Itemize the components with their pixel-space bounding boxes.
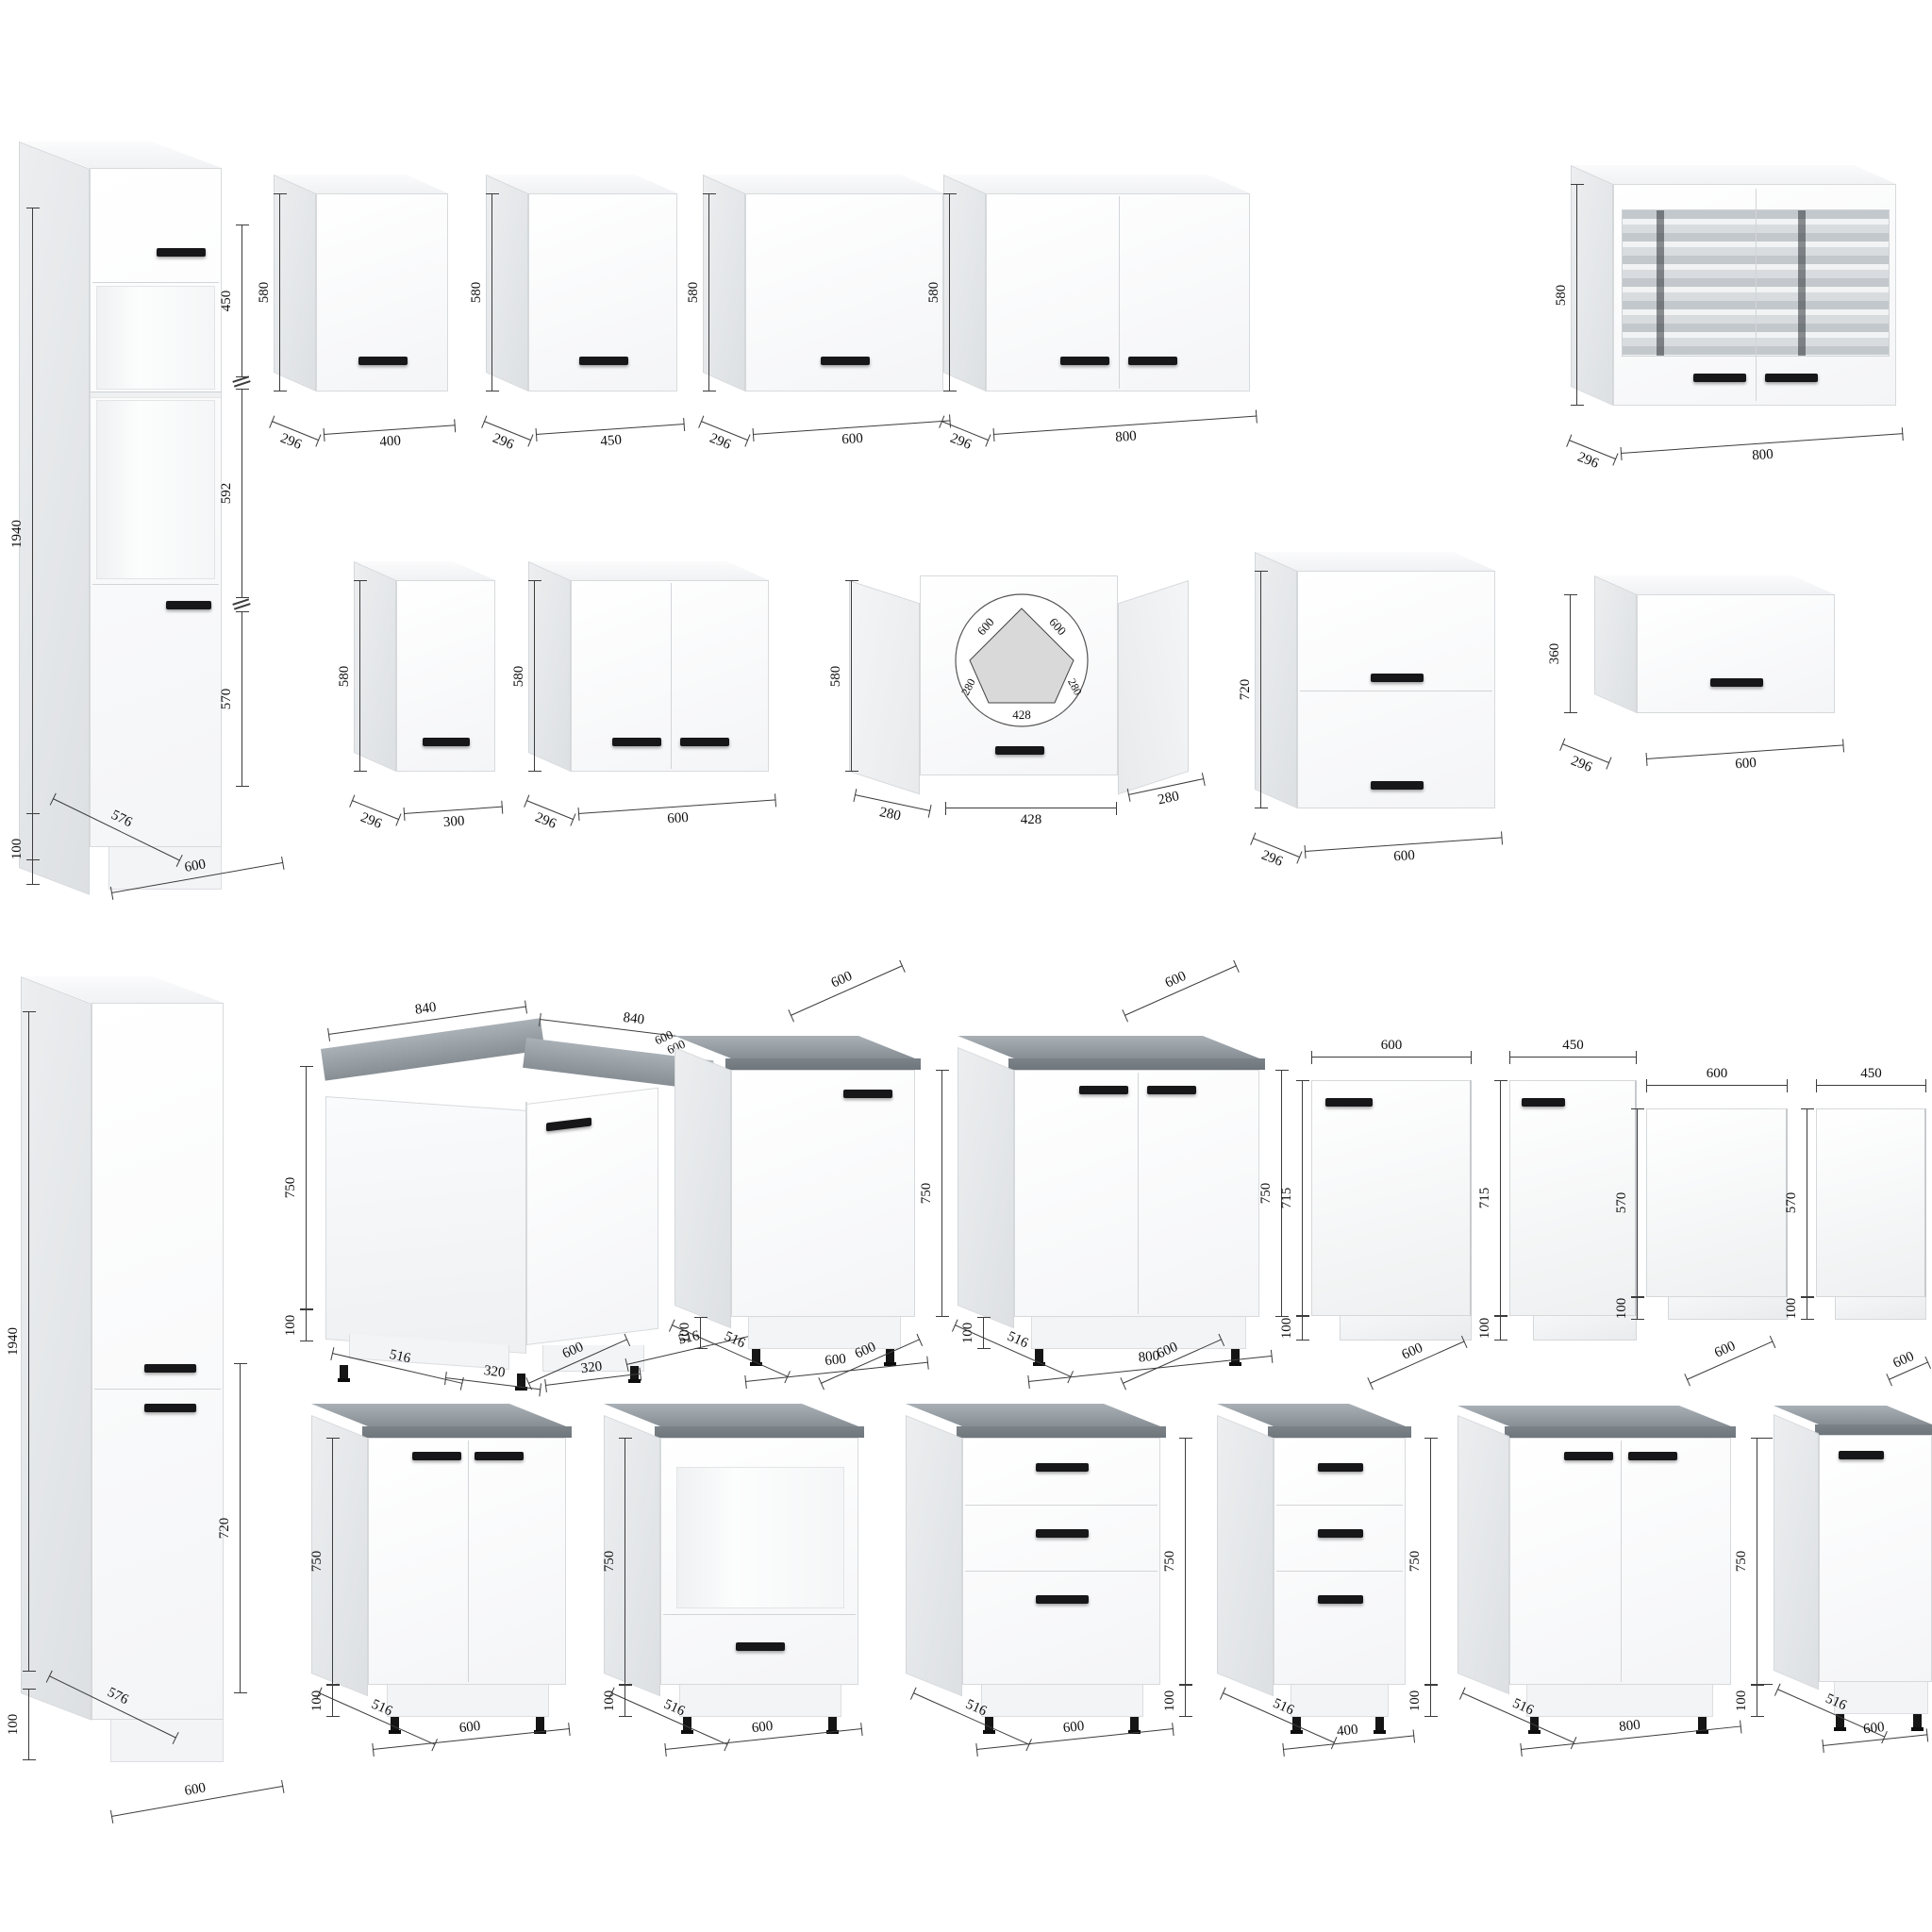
tall-fridge-housing-cabinet — [21, 976, 224, 1807]
wall-cabinet-600 — [703, 175, 943, 391]
door-handle — [1079, 1086, 1128, 1094]
door-handle — [1628, 1452, 1677, 1460]
drawer-handle — [1318, 1595, 1363, 1604]
corner-right-front — [526, 1088, 658, 1345]
door-handle — [1128, 357, 1177, 365]
door-handle — [612, 738, 661, 746]
oven-cavity — [676, 1467, 844, 1608]
dimension-label: 1940 — [10, 520, 25, 548]
drawer-handle — [157, 248, 206, 257]
dimension-line: 592 — [241, 389, 242, 598]
door-handle — [680, 738, 729, 746]
open-niche — [96, 400, 215, 579]
door-handle — [1765, 374, 1818, 382]
panel-handle — [1522, 1098, 1565, 1107]
door-handle — [546, 1118, 591, 1132]
base-cabinet-800-double — [1457, 1406, 1731, 1743]
drawer-handle — [1318, 1463, 1363, 1472]
adjustable-leg — [1130, 1717, 1139, 1731]
door-handle — [1839, 1451, 1884, 1459]
corner-plan-diagram: 600 600 280 280 428 — [951, 590, 1092, 731]
adjustable-leg — [1231, 1349, 1240, 1363]
corner-left-front — [325, 1096, 526, 1354]
door-handle — [1693, 374, 1746, 382]
wall-cabinet-450 — [486, 175, 677, 391]
flip-door-handle — [1710, 678, 1763, 687]
door-handle — [166, 601, 211, 609]
base-drawer-cabinet-600 — [906, 1404, 1160, 1743]
base-drawer-cabinet-400 — [1217, 1404, 1406, 1743]
wall-cabinet-720-flip — [1255, 552, 1495, 818]
door-handle — [843, 1090, 892, 1098]
dimension-label: 450 — [220, 291, 234, 312]
base-cabinet-600-single — [1774, 1406, 1932, 1743]
adjustable-leg — [536, 1717, 544, 1731]
dimension-line: 570 — [241, 611, 242, 787]
adjustable-leg — [1375, 1717, 1384, 1731]
base-oven-housing-600 — [604, 1404, 858, 1743]
dimension-label: 570 — [220, 689, 234, 710]
wall-glass-cabinet-800 — [1571, 165, 1896, 406]
base-cabinet-600-double — [311, 1404, 566, 1743]
drawer-handle — [1318, 1529, 1363, 1538]
corner-right-face — [1118, 580, 1189, 794]
flip-door-handle — [1371, 781, 1424, 790]
side-panel-450x570 — [1816, 1108, 1926, 1297]
panel-handle — [1325, 1098, 1373, 1107]
shelf — [91, 391, 221, 398]
countertop — [321, 1018, 544, 1080]
plinth — [110, 1720, 224, 1762]
base-cabinet-800 — [958, 1036, 1259, 1375]
svg-text:428: 428 — [1012, 708, 1031, 722]
dimension-label: 100 — [10, 839, 25, 860]
wall-cabinet-360-flip — [1594, 575, 1835, 723]
wall-cabinet-600-double — [528, 561, 769, 778]
door-handle — [579, 357, 628, 365]
door-handle — [821, 357, 870, 365]
door-handle — [475, 1452, 524, 1460]
dimension-line: 1940 — [32, 208, 33, 860]
adjustable-leg — [340, 1365, 348, 1379]
corner-base-cabinet — [311, 1019, 736, 1396]
front-panel-600x715 — [1311, 1080, 1472, 1316]
door-handle — [144, 1404, 196, 1412]
wall-cabinet-800 — [943, 175, 1250, 391]
cabinet-side-face — [19, 142, 90, 895]
door-handle — [423, 738, 470, 746]
dimension-line: 450 — [241, 225, 242, 377]
door-handle — [1147, 1086, 1196, 1094]
dimension-label: 592 — [220, 483, 234, 505]
countertop-edge — [725, 1058, 921, 1070]
door-handle — [995, 746, 1044, 755]
drawer-handle — [1036, 1529, 1089, 1538]
wall-cabinet-300 — [354, 561, 495, 778]
drawer-handle — [1036, 1463, 1089, 1472]
wall-corner-cabinet: 600 600 280 280 428 — [849, 561, 1193, 797]
drawer-handle — [1036, 1595, 1089, 1604]
drawer-handle — [736, 1642, 785, 1651]
door-handle — [144, 1364, 196, 1373]
door-handle — [1060, 357, 1109, 365]
flip-door-handle — [1371, 674, 1424, 682]
adjustable-leg — [828, 1717, 837, 1731]
base-cabinet-600 — [675, 1036, 915, 1375]
dimension-line: 100 — [32, 813, 33, 885]
side-panel-600x570 — [1646, 1108, 1788, 1297]
kitchen-cabinet-dimension-diagram: 1940 450 592 570 100 576 600 580 296 400… — [0, 0, 1932, 1932]
cabinet-front-face — [90, 168, 222, 847]
door-handle — [412, 1452, 461, 1460]
corner-left-face — [849, 580, 920, 794]
adjustable-leg — [1913, 1714, 1922, 1728]
door-handle — [1564, 1452, 1613, 1460]
wall-cabinet-400 — [274, 175, 448, 391]
door-handle — [358, 357, 408, 365]
open-niche — [96, 286, 215, 390]
